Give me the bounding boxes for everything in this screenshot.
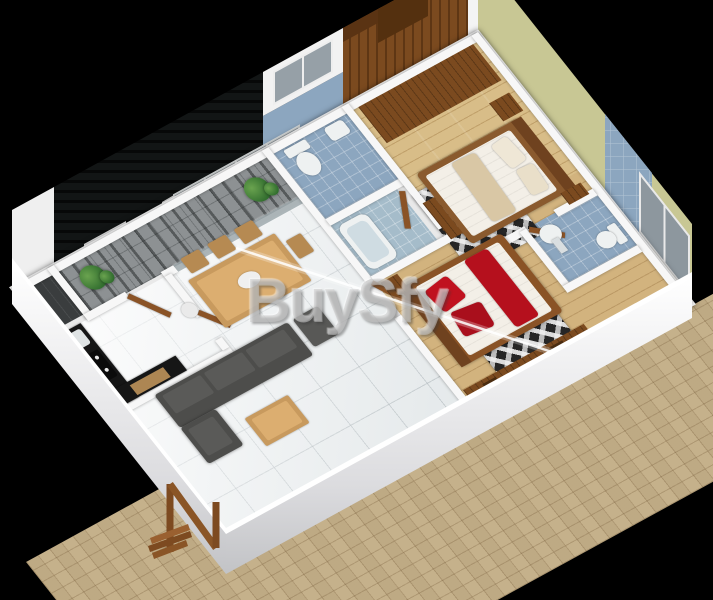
watermark: BuySfy bbox=[246, 266, 448, 337]
sw-wall-top-edge bbox=[12, 258, 226, 534]
floor-plan-render: BuySfy bbox=[0, 0, 713, 600]
sw-outer-wall-face bbox=[12, 262, 226, 574]
